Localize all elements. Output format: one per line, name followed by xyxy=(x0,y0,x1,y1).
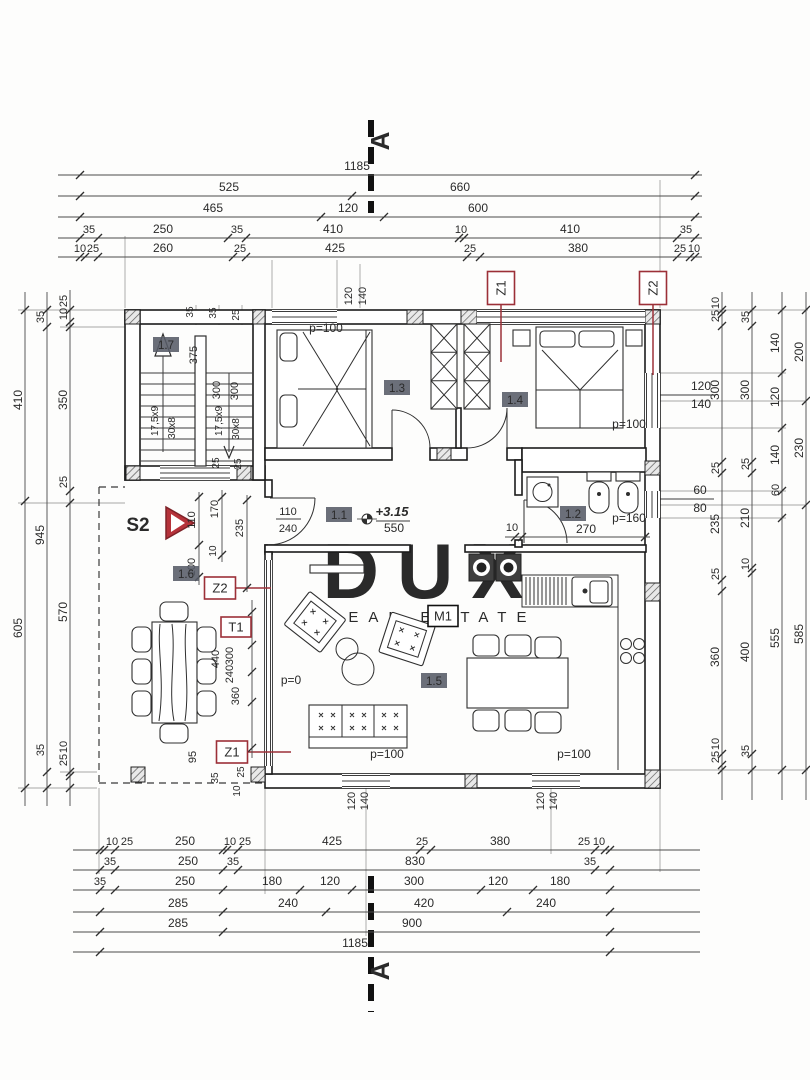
dim-label: 285 xyxy=(168,896,188,910)
dim-label: 35 xyxy=(35,744,47,756)
dim-label: 240 xyxy=(224,665,236,683)
dim-label: 300 xyxy=(404,874,424,888)
dim-label: 300 xyxy=(738,380,752,400)
dim-label: 360 xyxy=(230,687,242,705)
nightstand-2 xyxy=(626,330,642,346)
dim-label: 60 xyxy=(770,484,782,496)
room-badge-1.6: 1.6 xyxy=(173,566,199,581)
dim-label: 25 xyxy=(58,295,70,307)
sofa xyxy=(309,705,407,748)
dim-label: 235 xyxy=(708,514,722,534)
window-top-2 xyxy=(477,310,645,324)
dim-label: 380 xyxy=(568,241,588,255)
dim-chain xyxy=(43,292,51,806)
dim-label: 555 xyxy=(768,628,782,648)
dim-label: 80 xyxy=(693,501,707,515)
dim-label: 410 xyxy=(323,222,343,236)
door-room13 xyxy=(392,410,430,448)
dim-label: 30x8 xyxy=(167,417,178,439)
dim-label: 10 xyxy=(593,836,605,848)
dim-label: 230 xyxy=(792,438,806,458)
dim-label: 25 xyxy=(416,836,428,848)
dim-label: A xyxy=(365,961,395,980)
dim-label: 25 xyxy=(239,836,251,848)
dim-label: 17,5x9 xyxy=(150,406,161,436)
dim-label: 95 xyxy=(187,751,199,763)
dim-label: 200 xyxy=(792,342,806,362)
dim-chain xyxy=(748,292,756,800)
dim-label: 35 xyxy=(231,224,243,236)
toilet xyxy=(587,472,611,513)
room-badge-1.2: 1.2 xyxy=(560,506,586,521)
dim-label: 900 xyxy=(402,916,422,930)
dim-label: 140 xyxy=(768,333,782,353)
dim-label: p=0 xyxy=(281,673,302,687)
dim-chain xyxy=(21,292,29,806)
dim-label: 25 xyxy=(231,309,242,321)
dim-label: 35 xyxy=(584,856,596,868)
dim-label: 25 xyxy=(121,836,133,848)
dim-chain xyxy=(73,846,700,854)
dim-label: 110 xyxy=(279,506,297,518)
marker-box-Z2: Z2 xyxy=(205,577,236,599)
dim-label: 945 xyxy=(33,525,47,545)
stove xyxy=(621,639,645,664)
dim-label: 410 xyxy=(560,222,580,236)
dim-label: 270 xyxy=(576,522,596,536)
dim-label: 180 xyxy=(262,874,282,888)
coffee-table-small xyxy=(336,638,358,660)
dim-label: 35 xyxy=(740,311,752,323)
dim-label: 10 xyxy=(688,243,700,255)
dim-chain xyxy=(778,292,786,800)
dim-label: 350 xyxy=(56,390,70,410)
dining-table xyxy=(467,635,568,733)
dim-label: 10 xyxy=(224,836,236,848)
dim-label: A xyxy=(365,131,395,150)
dim-label: 120 xyxy=(346,792,358,810)
elevation-marker xyxy=(357,514,377,524)
dim-label: 35 xyxy=(210,772,221,784)
dim-label: 25 xyxy=(211,457,222,469)
room-badge-1.1: 1.1 xyxy=(326,507,352,522)
window-west-terrace-door xyxy=(265,560,272,766)
dim-chain xyxy=(73,886,700,894)
dim-label: 25 xyxy=(710,310,722,322)
dim-label: 440 xyxy=(210,650,222,668)
svg-text:1.5: 1.5 xyxy=(426,676,442,688)
dim-label: 10 xyxy=(710,297,722,309)
svg-text:1.6: 1.6 xyxy=(178,569,194,581)
dim-label: 425 xyxy=(325,241,345,255)
svg-text:T1: T1 xyxy=(228,620,243,635)
dim-label: 300 xyxy=(229,382,241,400)
wardrobes xyxy=(431,324,490,409)
marker-box-T1: T1 xyxy=(221,617,251,637)
dim-label: 25 xyxy=(464,243,476,255)
dim-label: 30x8 xyxy=(231,418,242,440)
dim-label: 120 xyxy=(343,287,355,305)
coffee-table-large xyxy=(342,653,374,685)
dim-label: 1185 xyxy=(344,159,370,173)
dim-label: 1185 xyxy=(342,936,368,950)
svg-text:1.1: 1.1 xyxy=(331,510,347,522)
floor-plan-page: DUX REAL ESTATE xyxy=(0,0,810,1080)
dim-label: 10 xyxy=(506,522,518,534)
dim-label: p=160 xyxy=(612,511,646,525)
dim-label: 60 xyxy=(693,483,707,497)
dim-label: 25 xyxy=(710,462,722,474)
dim-label: 35 xyxy=(740,745,752,757)
dim-label: 465 xyxy=(203,201,223,215)
dim-label: 120 xyxy=(768,387,782,407)
dim-label: 140 xyxy=(357,287,369,305)
dim-label: 10 xyxy=(106,836,118,848)
washbasin xyxy=(527,477,558,507)
dim-chain xyxy=(58,213,702,221)
dim-label: 35 xyxy=(680,224,692,236)
dim-label: 120 xyxy=(535,792,547,810)
dim-label: 17,5x9 xyxy=(214,406,225,436)
dim-label: 570 xyxy=(56,602,70,622)
svg-text:1.7: 1.7 xyxy=(158,340,174,352)
dim-label: 10 xyxy=(74,243,86,255)
dim-label: 285 xyxy=(168,916,188,930)
dim-label: 300 xyxy=(224,647,236,665)
dim-label: 585 xyxy=(792,624,806,644)
dim-label: 180 xyxy=(550,874,570,888)
dim-label: 10 xyxy=(232,785,243,797)
dim-chain xyxy=(58,192,702,200)
door-room14 xyxy=(467,408,507,448)
room-badge-1.7: 1.7 xyxy=(153,337,179,352)
dim-label: 660 xyxy=(450,180,470,194)
bed-room14 xyxy=(513,327,642,428)
svg-text:Z1: Z1 xyxy=(224,745,239,760)
svg-text:Z2: Z2 xyxy=(646,280,661,295)
dim-chain xyxy=(73,948,700,956)
dim-label: 25 xyxy=(58,476,70,488)
marker-box-M1: M1 xyxy=(428,606,458,627)
floor-plan-drawing: DUX REAL ESTATE xyxy=(0,0,810,1080)
dim-label: 235 xyxy=(234,519,246,537)
marker-box-Z1: Z1 xyxy=(488,272,515,305)
dim-chain xyxy=(718,292,726,800)
dim-label: 120 xyxy=(338,201,358,215)
svg-text:M1: M1 xyxy=(434,609,452,624)
dim-label: 140 xyxy=(691,397,711,411)
dim-label: 375 xyxy=(188,346,200,364)
dim-label: p=100 xyxy=(370,747,404,761)
window-south-2 xyxy=(532,774,580,788)
window-east-bathroom xyxy=(645,491,660,518)
dim-chain xyxy=(73,866,700,874)
dim-label: 400 xyxy=(738,642,752,662)
svg-text:1.4: 1.4 xyxy=(507,395,524,407)
dim-label: 410 xyxy=(11,390,25,410)
dim-label: 35 xyxy=(104,856,116,868)
dim-label: 170 xyxy=(209,500,221,518)
dim-label: 250 xyxy=(153,222,173,236)
svg-text:1.2: 1.2 xyxy=(565,509,581,521)
dim-label: 600 xyxy=(468,201,488,215)
dim-label: 35 xyxy=(35,311,47,323)
dim-label: 10 xyxy=(740,558,752,570)
dim-label: 25 xyxy=(58,754,70,766)
appliance-2 xyxy=(496,554,521,581)
dim-label: 35 xyxy=(83,224,95,236)
dim-label: 25 xyxy=(234,243,246,255)
dim-label: 35 xyxy=(227,856,239,868)
bidet xyxy=(616,472,640,513)
dim-label: 380 xyxy=(490,834,510,848)
dim-label: 10 xyxy=(58,308,70,320)
dim-label: 25 xyxy=(233,458,244,470)
dim-label: 25 xyxy=(740,458,752,470)
dim-label: 830 xyxy=(405,854,425,868)
dim-label: 240 xyxy=(279,523,297,535)
wardrobe-1 xyxy=(431,324,457,409)
dim-label: +3.15 xyxy=(376,504,410,519)
room-badge-1.5: 1.5 xyxy=(421,673,447,688)
dim-chain xyxy=(66,290,74,806)
nightstand-1 xyxy=(513,330,530,346)
dim-label: 10 xyxy=(208,545,219,557)
dim-label: 420 xyxy=(414,896,434,910)
svg-text:Z2: Z2 xyxy=(212,581,227,596)
dim-label: p=100 xyxy=(612,417,646,431)
dim-label: 10 xyxy=(58,741,70,753)
dim-label: 210 xyxy=(738,508,752,528)
room-badge-1.3: 1.3 xyxy=(384,380,410,395)
dim-label: 110 xyxy=(186,511,198,529)
dim-label: 25 xyxy=(710,751,722,763)
dim-label: 120 xyxy=(691,379,711,393)
dim-label: 360 xyxy=(708,647,722,667)
dim-label: 250 xyxy=(175,874,195,888)
room-badge-1.4: 1.4 xyxy=(502,392,528,407)
dim-label: 525 xyxy=(219,180,239,194)
dim-label: 25 xyxy=(674,243,686,255)
dim-label: 240 xyxy=(536,896,556,910)
dim-chain xyxy=(243,495,251,592)
dim-chain xyxy=(58,171,702,179)
terrace-table xyxy=(132,602,216,743)
svg-text:Z1: Z1 xyxy=(494,280,509,295)
dim-label: 25 xyxy=(236,766,247,778)
bed-room13 xyxy=(277,330,372,448)
dim-label: 25 xyxy=(578,836,590,848)
dim-label: 250 xyxy=(175,834,195,848)
dim-label: 300 xyxy=(211,381,223,399)
sideboard xyxy=(310,565,364,573)
dim-label: 140 xyxy=(359,792,371,810)
dim-label: 120 xyxy=(488,874,508,888)
dim-label: 35 xyxy=(185,306,196,318)
dim-label: 35 xyxy=(94,876,106,888)
dim-label: 240 xyxy=(278,896,298,910)
dim-label: 425 xyxy=(322,834,342,848)
dim-label: 25 xyxy=(710,568,722,580)
dim-label: 140 xyxy=(548,792,560,810)
dim-label: 250 xyxy=(178,854,198,868)
dim-label: 140 xyxy=(768,445,782,465)
marker-box-Z2: Z2 xyxy=(640,272,667,305)
dim-label: p=100 xyxy=(557,747,591,761)
s2-label: S2 xyxy=(126,515,149,536)
dim-label: 260 xyxy=(153,241,173,255)
dim-label: 25 xyxy=(87,243,99,255)
svg-text:1.3: 1.3 xyxy=(389,383,405,395)
appliance-1 xyxy=(469,554,494,581)
dim-label: 10 xyxy=(455,224,467,236)
marker-box-Z1: Z1 xyxy=(217,741,248,763)
window-east-bedroom xyxy=(645,373,660,428)
dim-label: p=100 xyxy=(309,321,343,335)
dim-label: 35 xyxy=(208,307,219,319)
window-south-1 xyxy=(342,774,390,788)
dim-label: 605 xyxy=(11,618,25,638)
wardrobe-2 xyxy=(464,324,490,409)
dim-chain xyxy=(802,292,810,800)
kitchen-sink xyxy=(572,577,612,606)
dim-label: 550 xyxy=(384,521,404,535)
dim-label: 10 xyxy=(710,738,722,750)
dim-label: 120 xyxy=(320,874,340,888)
